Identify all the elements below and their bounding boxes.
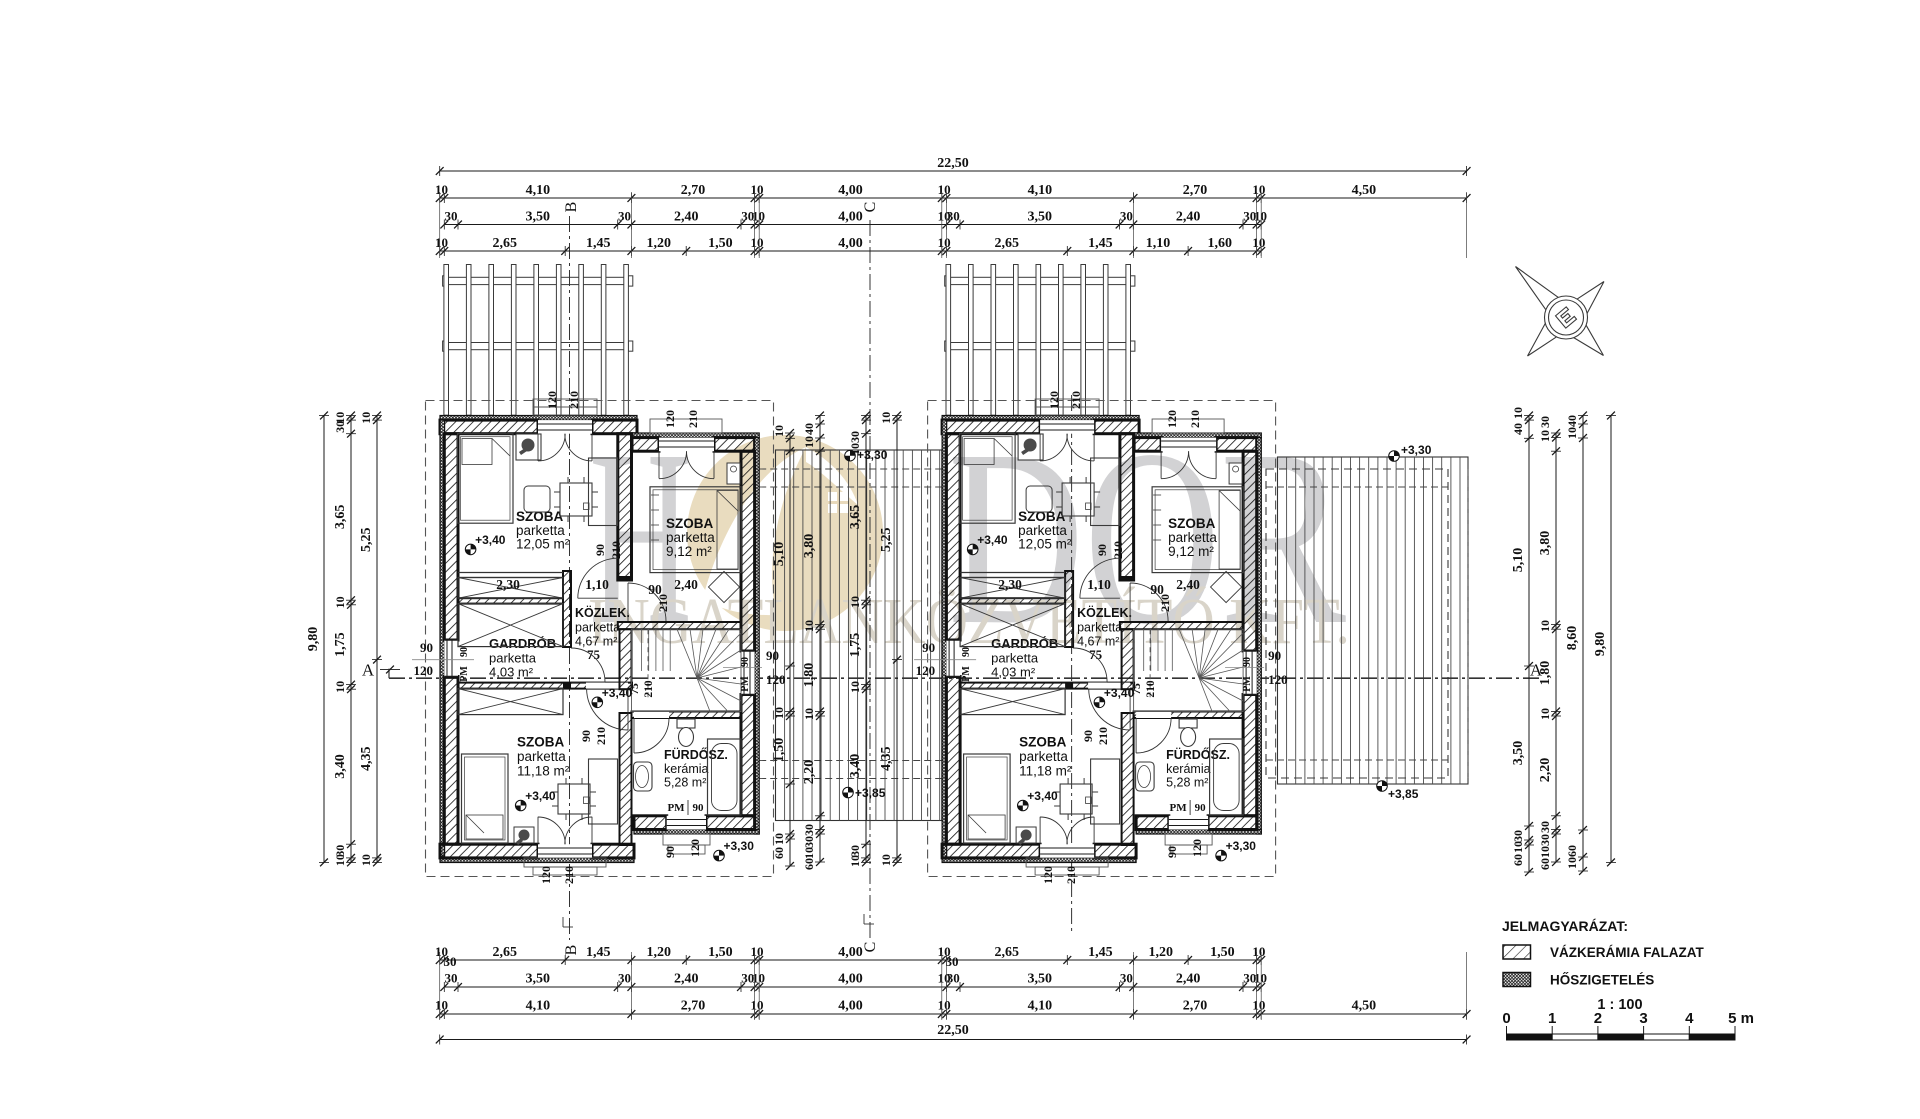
svg-text:4,10: 4,10 (1028, 183, 1053, 198)
svg-text:30: 30 (1538, 834, 1552, 846)
svg-text:SZOBA: SZOBA (1018, 509, 1066, 524)
svg-text:60: 60 (1538, 858, 1552, 870)
svg-text:10: 10 (1565, 427, 1579, 439)
svg-text:30: 30 (333, 421, 347, 433)
svg-text:90: 90 (593, 544, 607, 556)
svg-text:4,10: 4,10 (526, 183, 551, 198)
svg-text:11,18 m²: 11,18 m² (517, 764, 570, 779)
svg-text:C: C (862, 942, 879, 953)
svg-text:30: 30 (1538, 821, 1552, 833)
svg-text:90: 90 (740, 657, 751, 667)
svg-text:210: 210 (656, 594, 670, 612)
svg-text:8,60: 8,60 (1565, 626, 1580, 651)
svg-text:1,45: 1,45 (586, 236, 611, 251)
svg-text:FÜRDŐSZ.: FÜRDŐSZ. (1166, 747, 1230, 762)
svg-text:+3,40: +3,40 (475, 533, 506, 547)
svg-text:4,00: 4,00 (838, 972, 863, 987)
svg-text:GARDRÓB: GARDRÓB (489, 636, 556, 651)
svg-text:9,80: 9,80 (1593, 632, 1608, 657)
svg-text:30: 30 (802, 836, 816, 848)
svg-text:3,40: 3,40 (333, 754, 348, 779)
svg-text:90: 90 (1268, 648, 1281, 663)
svg-text:2,40: 2,40 (1176, 577, 1200, 592)
svg-text:JELMAGYARÁZAT:: JELMAGYARÁZAT: (1502, 918, 1628, 934)
svg-text:1,50: 1,50 (772, 738, 787, 763)
svg-text:5 m: 5 m (1728, 1010, 1754, 1027)
svg-text:210: 210 (1111, 541, 1125, 559)
svg-text:60: 60 (772, 847, 786, 859)
svg-text:90: 90 (1165, 846, 1179, 858)
svg-text:3: 3 (1639, 1010, 1647, 1027)
svg-text:10: 10 (1538, 846, 1552, 858)
svg-text:2: 2 (1594, 1010, 1602, 1027)
svg-text:3,50: 3,50 (1028, 972, 1053, 987)
svg-text:10: 10 (1565, 857, 1579, 869)
svg-text:A: A (362, 661, 375, 680)
svg-text:1,75: 1,75 (848, 633, 863, 658)
svg-text:C: C (862, 202, 879, 213)
svg-text:2,65: 2,65 (492, 236, 517, 251)
svg-text:2,40: 2,40 (674, 972, 699, 987)
svg-text:10: 10 (435, 998, 448, 1013)
svg-text:1: 1 (1548, 1010, 1556, 1027)
svg-text:10: 10 (802, 847, 816, 859)
svg-text:210: 210 (686, 410, 700, 428)
svg-text:120: 120 (688, 839, 702, 857)
svg-text:30: 30 (848, 431, 862, 443)
svg-text:210: 210 (594, 727, 608, 745)
svg-text:210: 210 (1158, 594, 1172, 612)
svg-text:120: 120 (766, 672, 786, 687)
svg-text:3,50: 3,50 (526, 210, 551, 225)
svg-text:4,00: 4,00 (838, 945, 863, 960)
svg-text:2,40: 2,40 (1176, 210, 1201, 225)
svg-text:120: 120 (1268, 672, 1288, 687)
svg-text:12,05 m²: 12,05 m² (516, 537, 570, 552)
svg-text:10: 10 (772, 833, 786, 845)
svg-text:2,70: 2,70 (1183, 999, 1208, 1014)
svg-text:10: 10 (848, 855, 862, 867)
svg-text:10: 10 (435, 182, 448, 197)
svg-text:+3,85: +3,85 (855, 786, 886, 800)
svg-text:parketta: parketta (1077, 621, 1122, 635)
svg-text:kerámia: kerámia (1166, 762, 1211, 776)
svg-text:10: 10 (333, 681, 347, 693)
svg-text:9,12 m²: 9,12 m² (1168, 544, 1214, 559)
svg-text:SZOBA: SZOBA (1168, 516, 1216, 531)
svg-text:22,50: 22,50 (937, 1023, 969, 1038)
svg-text:2,30: 2,30 (998, 577, 1022, 592)
svg-text:1,10: 1,10 (585, 577, 609, 592)
svg-text:10: 10 (772, 707, 786, 719)
svg-text:60: 60 (1565, 845, 1579, 857)
svg-text:parketta: parketta (517, 749, 566, 764)
svg-text:10: 10 (848, 596, 862, 608)
svg-text:75: 75 (587, 647, 601, 662)
svg-text:30: 30 (445, 209, 458, 224)
svg-text:10: 10 (751, 944, 764, 959)
svg-text:5,25: 5,25 (879, 528, 894, 553)
svg-text:4,00: 4,00 (838, 236, 863, 251)
svg-text:9,80: 9,80 (306, 627, 321, 652)
svg-text:2,70: 2,70 (1183, 183, 1208, 198)
svg-text:2,30: 2,30 (496, 577, 520, 592)
svg-text:PM: PM (1242, 676, 1253, 692)
svg-text:5,25: 5,25 (359, 528, 374, 553)
svg-text:parketta: parketta (1019, 749, 1068, 764)
svg-text:+3,30: +3,30 (1226, 839, 1257, 853)
svg-text:90: 90 (961, 647, 972, 657)
svg-text:3,65: 3,65 (333, 505, 348, 530)
svg-text:30: 30 (1120, 971, 1133, 986)
svg-text:5,28 m²: 5,28 m² (664, 776, 706, 790)
svg-text:210: 210 (643, 680, 655, 698)
svg-text:30: 30 (947, 971, 960, 986)
svg-text:75: 75 (1089, 647, 1103, 662)
svg-text:22,50: 22,50 (937, 156, 969, 171)
svg-text:1,20: 1,20 (647, 236, 672, 251)
svg-text:120: 120 (1047, 391, 1061, 409)
svg-text:parketta: parketta (991, 651, 1039, 666)
svg-text:120: 120 (663, 410, 677, 428)
svg-text:10: 10 (752, 971, 765, 986)
svg-text:210: 210 (609, 541, 623, 559)
svg-text:1,60: 1,60 (1207, 236, 1232, 251)
svg-text:10: 10 (751, 998, 764, 1013)
svg-text:10: 10 (1538, 620, 1552, 632)
svg-text:3,80: 3,80 (1538, 531, 1553, 556)
svg-text:30: 30 (946, 954, 959, 969)
svg-text:90: 90 (663, 846, 677, 858)
svg-text:30: 30 (618, 971, 631, 986)
svg-text:11,18 m²: 11,18 m² (1019, 764, 1072, 779)
svg-text:10: 10 (1252, 235, 1265, 250)
svg-text:10: 10 (802, 708, 816, 720)
svg-text:10: 10 (1254, 209, 1267, 224)
svg-text:90: 90 (1095, 544, 1109, 556)
svg-text:PM: PM (459, 666, 470, 682)
svg-text:4,35: 4,35 (359, 746, 374, 771)
svg-text:PM: PM (961, 666, 972, 682)
svg-text:60: 60 (802, 858, 816, 870)
svg-text:30: 30 (802, 824, 816, 836)
svg-text:210: 210 (1069, 391, 1083, 409)
svg-text:60: 60 (1511, 854, 1525, 866)
svg-text:30: 30 (445, 971, 458, 986)
svg-text:10: 10 (751, 235, 764, 250)
svg-text:3,50: 3,50 (526, 972, 551, 987)
svg-text:90: 90 (1195, 802, 1207, 814)
svg-text:10: 10 (1511, 841, 1525, 853)
svg-text:1,10: 1,10 (1087, 577, 1111, 592)
svg-text:GARDRÓB: GARDRÓB (991, 636, 1058, 651)
svg-text:4,00: 4,00 (838, 183, 863, 198)
svg-text:90: 90 (420, 640, 433, 655)
svg-text:12,05 m²: 12,05 m² (1018, 537, 1072, 552)
svg-text:10: 10 (359, 854, 373, 866)
svg-text:40: 40 (1511, 423, 1525, 435)
svg-text:9,12 m²: 9,12 m² (666, 544, 712, 559)
svg-text:90: 90 (459, 647, 470, 657)
svg-text:30: 30 (1120, 209, 1133, 224)
svg-text:1,10: 1,10 (1146, 236, 1171, 251)
svg-text:1,45: 1,45 (1088, 236, 1113, 251)
svg-text:SZOBA: SZOBA (516, 509, 564, 524)
svg-text:4,50: 4,50 (1352, 183, 1377, 198)
svg-text:30: 30 (1538, 416, 1552, 428)
svg-text:4,03 m²: 4,03 m² (489, 665, 534, 680)
svg-text:PM: PM (667, 802, 685, 814)
svg-text:FÜRDŐSZ.: FÜRDŐSZ. (664, 747, 728, 762)
svg-text:120: 120 (545, 391, 559, 409)
svg-text:210: 210 (1096, 727, 1110, 745)
svg-text:1,50: 1,50 (1210, 945, 1235, 960)
svg-text:2,40: 2,40 (674, 210, 699, 225)
svg-text:10: 10 (938, 182, 951, 197)
svg-text:120: 120 (1165, 410, 1179, 428)
svg-text:PM: PM (1170, 802, 1188, 814)
svg-text:1,50: 1,50 (708, 945, 733, 960)
svg-text:1 : 100: 1 : 100 (1597, 997, 1642, 1013)
svg-text:1,50: 1,50 (708, 236, 733, 251)
svg-text:10: 10 (938, 235, 951, 250)
svg-text:90: 90 (693, 802, 705, 814)
svg-text:HŐSZIGETELÉS: HŐSZIGETELÉS (1550, 973, 1654, 988)
svg-text:parketta: parketta (666, 530, 715, 545)
svg-text:3,50: 3,50 (1028, 210, 1053, 225)
svg-text:10: 10 (802, 620, 816, 632)
svg-text:4,00: 4,00 (838, 210, 863, 225)
svg-text:10: 10 (751, 182, 764, 197)
svg-text:10: 10 (435, 235, 448, 250)
svg-text:4: 4 (1685, 1010, 1694, 1027)
svg-text:90: 90 (922, 640, 935, 655)
svg-text:30: 30 (618, 209, 631, 224)
svg-text:10: 10 (333, 854, 347, 866)
svg-text:+3,30: +3,30 (857, 448, 888, 462)
svg-text:10: 10 (752, 209, 765, 224)
svg-text:30: 30 (444, 954, 457, 969)
svg-text:10: 10 (802, 436, 816, 448)
svg-text:2,40: 2,40 (1176, 972, 1201, 987)
svg-text:2,40: 2,40 (674, 577, 698, 592)
svg-text:120: 120 (916, 663, 936, 678)
svg-text:30: 30 (1511, 830, 1525, 842)
svg-text:parketta: parketta (489, 651, 537, 666)
svg-text:4,35: 4,35 (879, 746, 894, 771)
svg-text:90: 90 (1242, 657, 1253, 667)
svg-text:KÖZLEK.: KÖZLEK. (1077, 605, 1132, 620)
svg-text:10: 10 (879, 412, 893, 424)
svg-text:10: 10 (1252, 182, 1265, 197)
svg-text:210: 210 (1145, 680, 1157, 698)
svg-text:210: 210 (562, 866, 576, 884)
svg-text:210: 210 (1188, 410, 1202, 428)
svg-text:10: 10 (848, 681, 862, 693)
svg-text:KÖZLEK.: KÖZLEK. (575, 605, 630, 620)
svg-text:4,50: 4,50 (1352, 999, 1377, 1014)
svg-text:2,70: 2,70 (681, 999, 706, 1014)
svg-text:2,65: 2,65 (995, 236, 1020, 251)
svg-text:120: 120 (1190, 839, 1204, 857)
svg-text:SZOBA: SZOBA (666, 516, 714, 531)
svg-text:10: 10 (1538, 430, 1552, 442)
svg-text:90: 90 (766, 648, 779, 663)
svg-text:10: 10 (772, 425, 786, 437)
svg-text:10: 10 (1252, 998, 1265, 1013)
svg-text:4,00: 4,00 (838, 999, 863, 1014)
svg-text:10: 10 (1252, 944, 1265, 959)
svg-text:10: 10 (1254, 971, 1267, 986)
svg-text:120: 120 (539, 866, 553, 884)
svg-text:1,45: 1,45 (1088, 945, 1113, 960)
svg-text:210: 210 (1064, 866, 1078, 884)
svg-text:3,50: 3,50 (1511, 741, 1526, 766)
svg-text:30: 30 (947, 209, 960, 224)
svg-text:+3,40: +3,40 (977, 533, 1008, 547)
svg-text:2,65: 2,65 (492, 945, 517, 960)
svg-text:3,80: 3,80 (802, 534, 817, 559)
svg-text:+3,40: +3,40 (1104, 686, 1135, 700)
svg-text:+3,30: +3,30 (724, 839, 755, 853)
svg-text:parketta: parketta (1168, 530, 1217, 545)
svg-text:B: B (563, 202, 580, 213)
svg-text:10: 10 (333, 596, 347, 608)
svg-text:2,20: 2,20 (802, 760, 817, 785)
svg-text:1,75: 1,75 (333, 632, 348, 657)
svg-text:SZOBA: SZOBA (517, 735, 565, 750)
svg-text:4,10: 4,10 (526, 999, 551, 1014)
svg-text:120: 120 (414, 663, 434, 678)
svg-text:B: B (563, 945, 580, 956)
svg-text:SZOBA: SZOBA (1019, 735, 1067, 750)
svg-text:kerámia: kerámia (664, 762, 709, 776)
svg-text:2,70: 2,70 (681, 183, 706, 198)
svg-text:+3,30: +3,30 (1401, 443, 1432, 457)
svg-text:40: 40 (802, 423, 816, 435)
svg-text:1,20: 1,20 (647, 945, 672, 960)
svg-text:10: 10 (359, 412, 373, 424)
svg-text:1,20: 1,20 (1148, 945, 1173, 960)
svg-text:+3,85: +3,85 (1388, 787, 1419, 801)
svg-text:PM: PM (740, 676, 751, 692)
svg-text:1,45: 1,45 (586, 945, 611, 960)
svg-text:90: 90 (1081, 730, 1095, 742)
svg-text:2,65: 2,65 (995, 945, 1020, 960)
svg-text:parketta: parketta (575, 621, 620, 635)
svg-text:+3,40: +3,40 (525, 789, 556, 803)
svg-text:0: 0 (1502, 1010, 1510, 1027)
svg-text:2,20: 2,20 (1538, 758, 1553, 783)
svg-text:210: 210 (567, 391, 581, 409)
svg-text:10: 10 (938, 998, 951, 1013)
svg-text:120: 120 (1041, 866, 1055, 884)
svg-text:1,80: 1,80 (802, 663, 817, 688)
svg-text:10: 10 (1538, 708, 1552, 720)
svg-text:3,40: 3,40 (848, 754, 863, 779)
svg-text:10: 10 (1511, 407, 1525, 419)
svg-text:3,65: 3,65 (848, 505, 863, 530)
svg-text:90: 90 (579, 730, 593, 742)
svg-text:40: 40 (1565, 415, 1579, 427)
svg-text:4,03 m²: 4,03 m² (991, 665, 1036, 680)
svg-text:1,80: 1,80 (1538, 661, 1553, 686)
svg-text:5,10: 5,10 (1511, 548, 1526, 573)
svg-text:10: 10 (879, 854, 893, 866)
svg-text:+3,40: +3,40 (1027, 789, 1058, 803)
svg-text:5,28 m²: 5,28 m² (1166, 776, 1208, 790)
svg-text:VÁZKERÁMIA FALAZAT: VÁZKERÁMIA FALAZAT (1550, 945, 1704, 960)
svg-text:4,10: 4,10 (1028, 999, 1053, 1014)
svg-text:5,10: 5,10 (772, 542, 787, 567)
svg-text:+3,40: +3,40 (602, 686, 633, 700)
